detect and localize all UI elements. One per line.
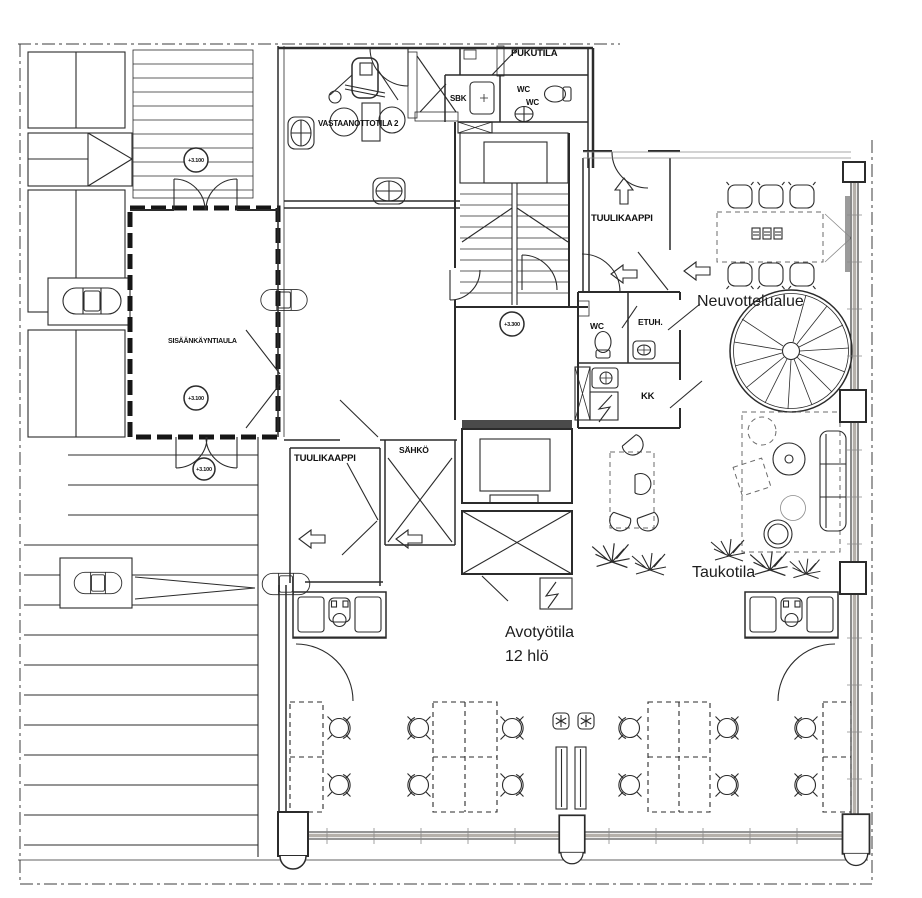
meeting-chair [727, 263, 754, 289]
break-room-zone [588, 428, 840, 566]
office-chair [795, 717, 818, 740]
door-leaf [622, 306, 637, 328]
office-chair [328, 774, 351, 797]
tub-chair [607, 512, 632, 534]
room-label-vestibule-left: TUULIKAAPPI [294, 453, 356, 464]
door-leaf [246, 330, 280, 428]
elevation-label: +3.300 [504, 322, 520, 328]
open-office-zone [288, 647, 848, 827]
round-table [748, 417, 776, 445]
lamp-icon [373, 178, 405, 204]
left-arrow-icon [684, 262, 710, 280]
room-label-sbk: SBK [450, 94, 467, 103]
sink-icon [633, 341, 655, 359]
sink-icon [515, 107, 533, 122]
wc-etuh-kk: WC ETUH. KK [575, 292, 702, 428]
electrical-room: SÄHKÖ [385, 440, 455, 545]
tv-screen [845, 196, 850, 272]
kitchen-appliances [575, 367, 618, 422]
room-label-changing: PUKUTILA [511, 48, 558, 59]
main-staircase: +3.300 [340, 122, 588, 437]
tub-chair [621, 434, 647, 460]
column [278, 812, 308, 869]
plant-icon [592, 543, 629, 567]
vestibule-right: TUULIKAAPPI [582, 151, 680, 292]
toilet-icon [595, 332, 611, 359]
door-leaf [420, 84, 446, 112]
dental-chair [329, 58, 405, 141]
office-chair [716, 774, 739, 797]
elevation-label: +3.100 [196, 467, 212, 473]
office-chair [619, 774, 642, 797]
door-leaf [668, 304, 700, 330]
meeting-area: Neuvottelualue [583, 152, 851, 310]
area-label-open-office-capacity: 12 hlö [505, 648, 549, 665]
ramp-wedge [135, 577, 255, 599]
wc-block-top: PUKUTILA SBK WC WC [420, 46, 588, 168]
office-chair [501, 717, 524, 740]
column [840, 562, 866, 594]
radiator-icon [578, 713, 594, 729]
kitchen-counter [745, 592, 838, 638]
room-label-wc: WC [526, 98, 539, 107]
benches [63, 288, 310, 595]
plant-icon [750, 551, 787, 575]
chevron-mark [88, 133, 132, 186]
screens [556, 747, 586, 809]
office-chair [795, 774, 818, 797]
curtain-walls [278, 162, 870, 869]
hatched-wall [415, 112, 458, 121]
room-label-anteroom: ETUH. [638, 317, 663, 327]
column [843, 814, 870, 865]
desks [290, 702, 851, 812]
meeting-chair [789, 182, 816, 208]
door-leaf [638, 252, 668, 290]
hatched-wall [497, 46, 504, 76]
area-label-open-office: Avotyötila [505, 624, 574, 641]
meeting-table [717, 212, 823, 262]
door-arc [778, 644, 835, 701]
room-label-vestibule-right: TUULIKAAPPI [591, 213, 653, 224]
column [840, 390, 866, 422]
reception-room: VASTAANOTTOTILA 2 [278, 48, 593, 208]
left-arrow-icon [611, 265, 637, 283]
office-chair [328, 717, 351, 740]
door-arc [582, 254, 620, 292]
entry-stair-top [133, 50, 253, 198]
plant-icon [632, 553, 666, 575]
door-leaf [340, 400, 378, 437]
side-table [733, 458, 771, 496]
door-leaf [342, 463, 378, 555]
area-label-meeting: Neuvottelualue [697, 293, 804, 310]
break-table [610, 452, 654, 528]
stool [781, 496, 806, 521]
column [843, 162, 865, 182]
planters [28, 52, 132, 608]
door-leaf [670, 381, 702, 408]
corner-sink [578, 301, 589, 316]
elevation-label: +3.100 [188, 158, 204, 164]
toilet-icon [545, 86, 572, 102]
lightning-icon [546, 582, 558, 608]
door-leaf [388, 458, 452, 542]
round-table [773, 443, 805, 475]
tub-chair [636, 512, 661, 534]
up-arrow-icon [615, 178, 633, 204]
column [559, 815, 585, 863]
plant-icon [790, 559, 821, 579]
open-office: Avotyötila 12 hlö [279, 585, 851, 822]
elevation-label: +3.100 [188, 396, 204, 402]
office-chair [501, 774, 524, 797]
entrance-lobby: +3.100 +3.100 +3.100 SISÄÄNKÄYNTIAULA [130, 46, 284, 480]
hatched-wall [408, 52, 417, 118]
area-label-break-room: Taukotila [692, 564, 755, 581]
room-label-wc: WC [517, 85, 530, 94]
door-arc [612, 152, 648, 188]
sofa [820, 431, 846, 531]
room-label-electrical: SÄHKÖ [399, 445, 429, 455]
room-label-entrance-lobby: SISÄÄNKÄYNTIAULA [168, 337, 237, 345]
terrace-steps [24, 437, 258, 857]
office-chair [716, 717, 739, 740]
plant-icon [711, 539, 745, 561]
door-arc [450, 270, 480, 300]
door-leaf [482, 576, 508, 601]
office-chair [408, 717, 431, 740]
door-arc [206, 179, 237, 210]
door-arc [370, 48, 408, 86]
tub-chair [635, 474, 651, 495]
meeting-chair [789, 263, 816, 289]
door-arc [174, 179, 205, 210]
meeting-chair [727, 182, 754, 208]
left-arrow-icon [299, 530, 325, 548]
table-outlets [752, 228, 782, 239]
meeting-chair [758, 263, 785, 289]
office-chair [619, 717, 642, 740]
door-arc [296, 644, 353, 701]
kitchen-counter [293, 592, 386, 638]
room-label-wc-mid: WC [590, 321, 604, 331]
floor-plan: +3.100 +3.100 +3.100 SISÄÄNKÄYNTIAULA VA… [0, 0, 922, 898]
radiator-icon [553, 713, 569, 729]
room-label-reception: VASTAANOTTOTILA 2 [318, 119, 399, 128]
meeting-chair [758, 182, 785, 208]
office-chair [408, 774, 431, 797]
room-label-kitchenette: KK [641, 391, 655, 402]
vestibule-left: TUULIKAAPPI [284, 440, 457, 586]
elevator [462, 420, 572, 609]
break-room: Taukotila [592, 412, 846, 581]
lamp-icon [288, 117, 314, 149]
floor-plan-canvas: +3.100 +3.100 +3.100 SISÄÄNKÄYNTIAULA VA… [0, 0, 922, 898]
